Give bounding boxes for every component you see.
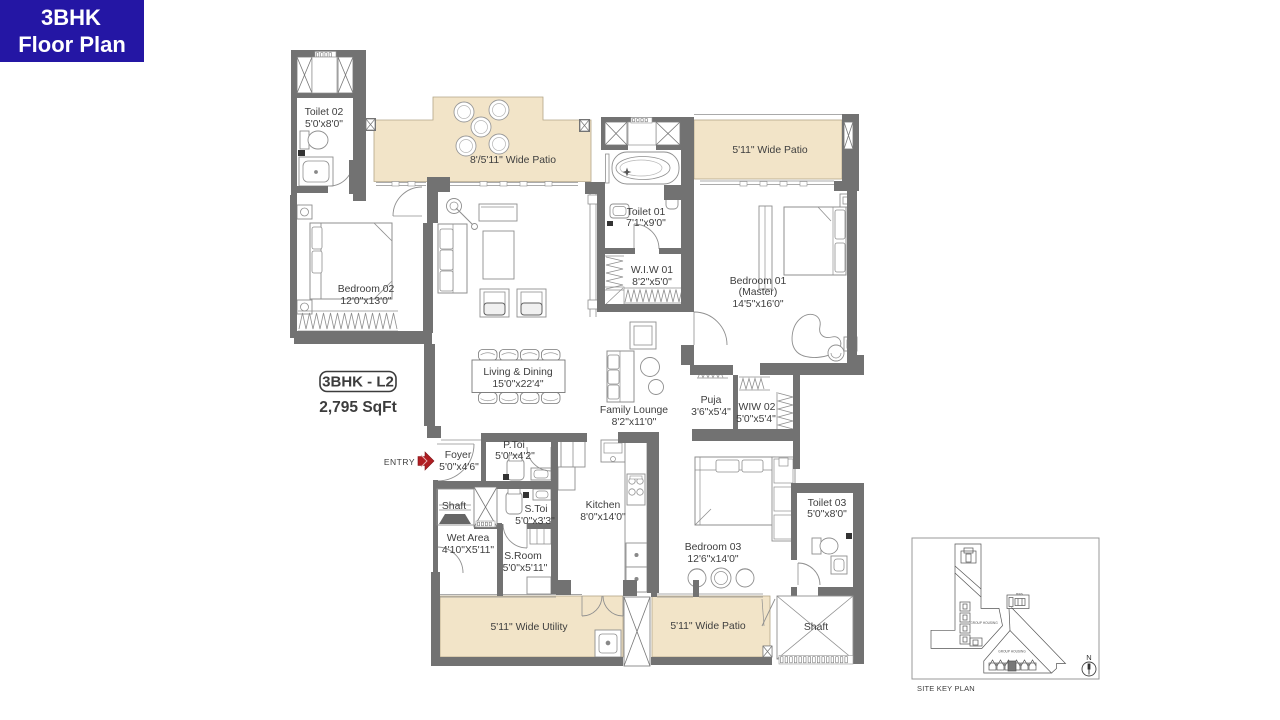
- svg-text:8'2"x11'0": 8'2"x11'0": [612, 417, 657, 428]
- svg-text:15'0"x22'4": 15'0"x22'4": [492, 379, 544, 390]
- svg-text:SITE KEY PLAN: SITE KEY PLAN: [917, 684, 975, 693]
- svg-text:2,795 SqFt: 2,795 SqFt: [319, 399, 397, 416]
- svg-text:8'2"x5'0": 8'2"x5'0": [632, 277, 672, 288]
- svg-text:12'0"x13'0": 12'0"x13'0": [340, 296, 392, 307]
- svg-text:W.I.W 01: W.I.W 01: [631, 265, 673, 276]
- svg-text:GROUP HOUSING: GROUP HOUSING: [998, 650, 1026, 654]
- svg-text:4'10"X5'11": 4'10"X5'11": [442, 545, 494, 556]
- svg-text:5'11" Wide Patio: 5'11" Wide Patio: [732, 145, 808, 156]
- svg-text:ENTRY: ENTRY: [384, 457, 415, 467]
- svg-text:7'1"x9'0": 7'1"x9'0": [626, 218, 666, 229]
- svg-text:WIW 02: WIW 02: [739, 402, 776, 413]
- svg-text:12'6"x14'0": 12'6"x14'0": [687, 554, 739, 565]
- svg-text:5'0"x4'6": 5'0"x4'6": [439, 462, 479, 473]
- svg-text:Toilet 01: Toilet 01: [627, 207, 666, 218]
- svg-text:Foyer: Foyer: [445, 450, 472, 461]
- svg-text:Wet Area: Wet Area: [447, 533, 490, 544]
- svg-text:Shaft: Shaft: [804, 622, 828, 633]
- svg-text:Bedroom 01: Bedroom 01: [730, 276, 787, 287]
- svg-text:S.Toi: S.Toi: [524, 504, 547, 515]
- svg-text:3'6"x5'4": 3'6"x5'4": [691, 407, 731, 418]
- svg-text:Toilet 03: Toilet 03: [808, 498, 847, 509]
- svg-text:3BHK: 3BHK: [41, 5, 101, 30]
- svg-text:Bedroom 02: Bedroom 02: [338, 284, 395, 295]
- svg-text:Shaft: Shaft: [442, 501, 466, 512]
- svg-text:BWS: BWS: [1016, 592, 1023, 596]
- svg-text:S.Room: S.Room: [504, 551, 542, 562]
- svg-text:Toilet 02: Toilet 02: [305, 107, 344, 118]
- svg-text:14'5"x16'0": 14'5"x16'0": [732, 299, 784, 310]
- svg-text:5'0"x8'0": 5'0"x8'0": [807, 509, 847, 520]
- svg-text:P.Toi: P.Toi: [503, 440, 525, 451]
- svg-text:Bedroom 03: Bedroom 03: [685, 542, 742, 553]
- svg-text:5'11" Wide Patio: 5'11" Wide Patio: [670, 621, 746, 632]
- svg-text:Puja: Puja: [701, 395, 722, 406]
- svg-text:8'/5'11" Wide Patio: 8'/5'11" Wide Patio: [470, 155, 556, 166]
- svg-text:Living & Dining: Living & Dining: [483, 367, 553, 378]
- svg-text:GROUP HOUSING: GROUP HOUSING: [970, 621, 998, 625]
- svg-text:Floor Plan: Floor Plan: [18, 32, 126, 57]
- svg-text:Kitchen: Kitchen: [586, 500, 621, 511]
- svg-text:Family Lounge: Family Lounge: [600, 405, 668, 416]
- svg-text:(Master): (Master): [739, 287, 778, 298]
- svg-text:5'0"x4'2": 5'0"x4'2": [495, 451, 535, 462]
- svg-text:5'0'x8'0": 5'0'x8'0": [305, 119, 343, 130]
- svg-text:5'0"x3'3": 5'0"x3'3": [515, 516, 555, 527]
- svg-text:8'0"x14'0": 8'0"x14'0": [580, 512, 626, 523]
- svg-text:5'11" Wide Utility: 5'11" Wide Utility: [490, 622, 568, 633]
- svg-text:3BHK - L2: 3BHK - L2: [322, 374, 394, 391]
- svg-text:N: N: [1086, 653, 1091, 662]
- svg-text:5'0"x5'4": 5'0"x5'4": [736, 414, 776, 425]
- svg-text:5'0"x5'11": 5'0"x5'11": [503, 563, 548, 574]
